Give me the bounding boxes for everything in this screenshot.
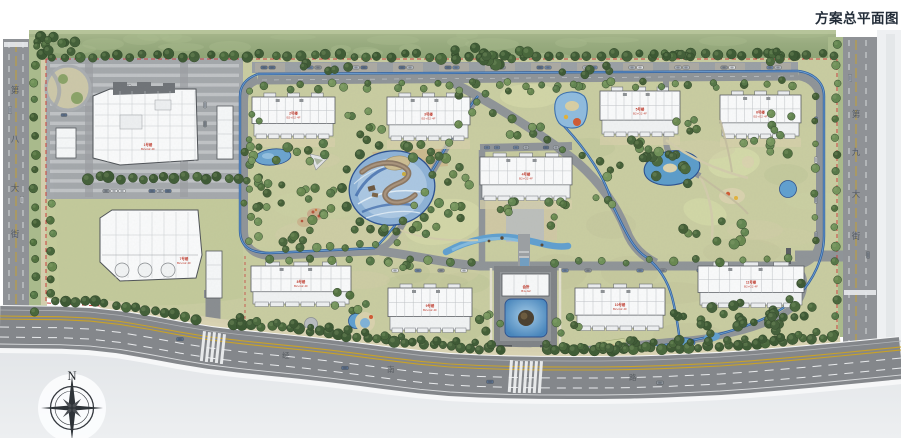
svg-text:九: 九 [852, 147, 861, 157]
svg-text:第: 第 [11, 85, 20, 95]
svg-text:大: 大 [852, 189, 861, 199]
svg-text:第: 第 [852, 109, 861, 119]
svg-text:街: 街 [852, 231, 861, 241]
svg-text:方案总平面图: 方案总平面图 [815, 10, 899, 26]
svg-text:八: 八 [11, 134, 20, 144]
svg-text:大: 大 [11, 183, 20, 193]
svg-text:经: 经 [282, 350, 290, 360]
svg-text:路: 路 [629, 372, 637, 382]
svg-text:N: N [67, 369, 76, 383]
svg-text:街: 街 [11, 229, 20, 239]
svg-text:南: 南 [387, 364, 395, 374]
